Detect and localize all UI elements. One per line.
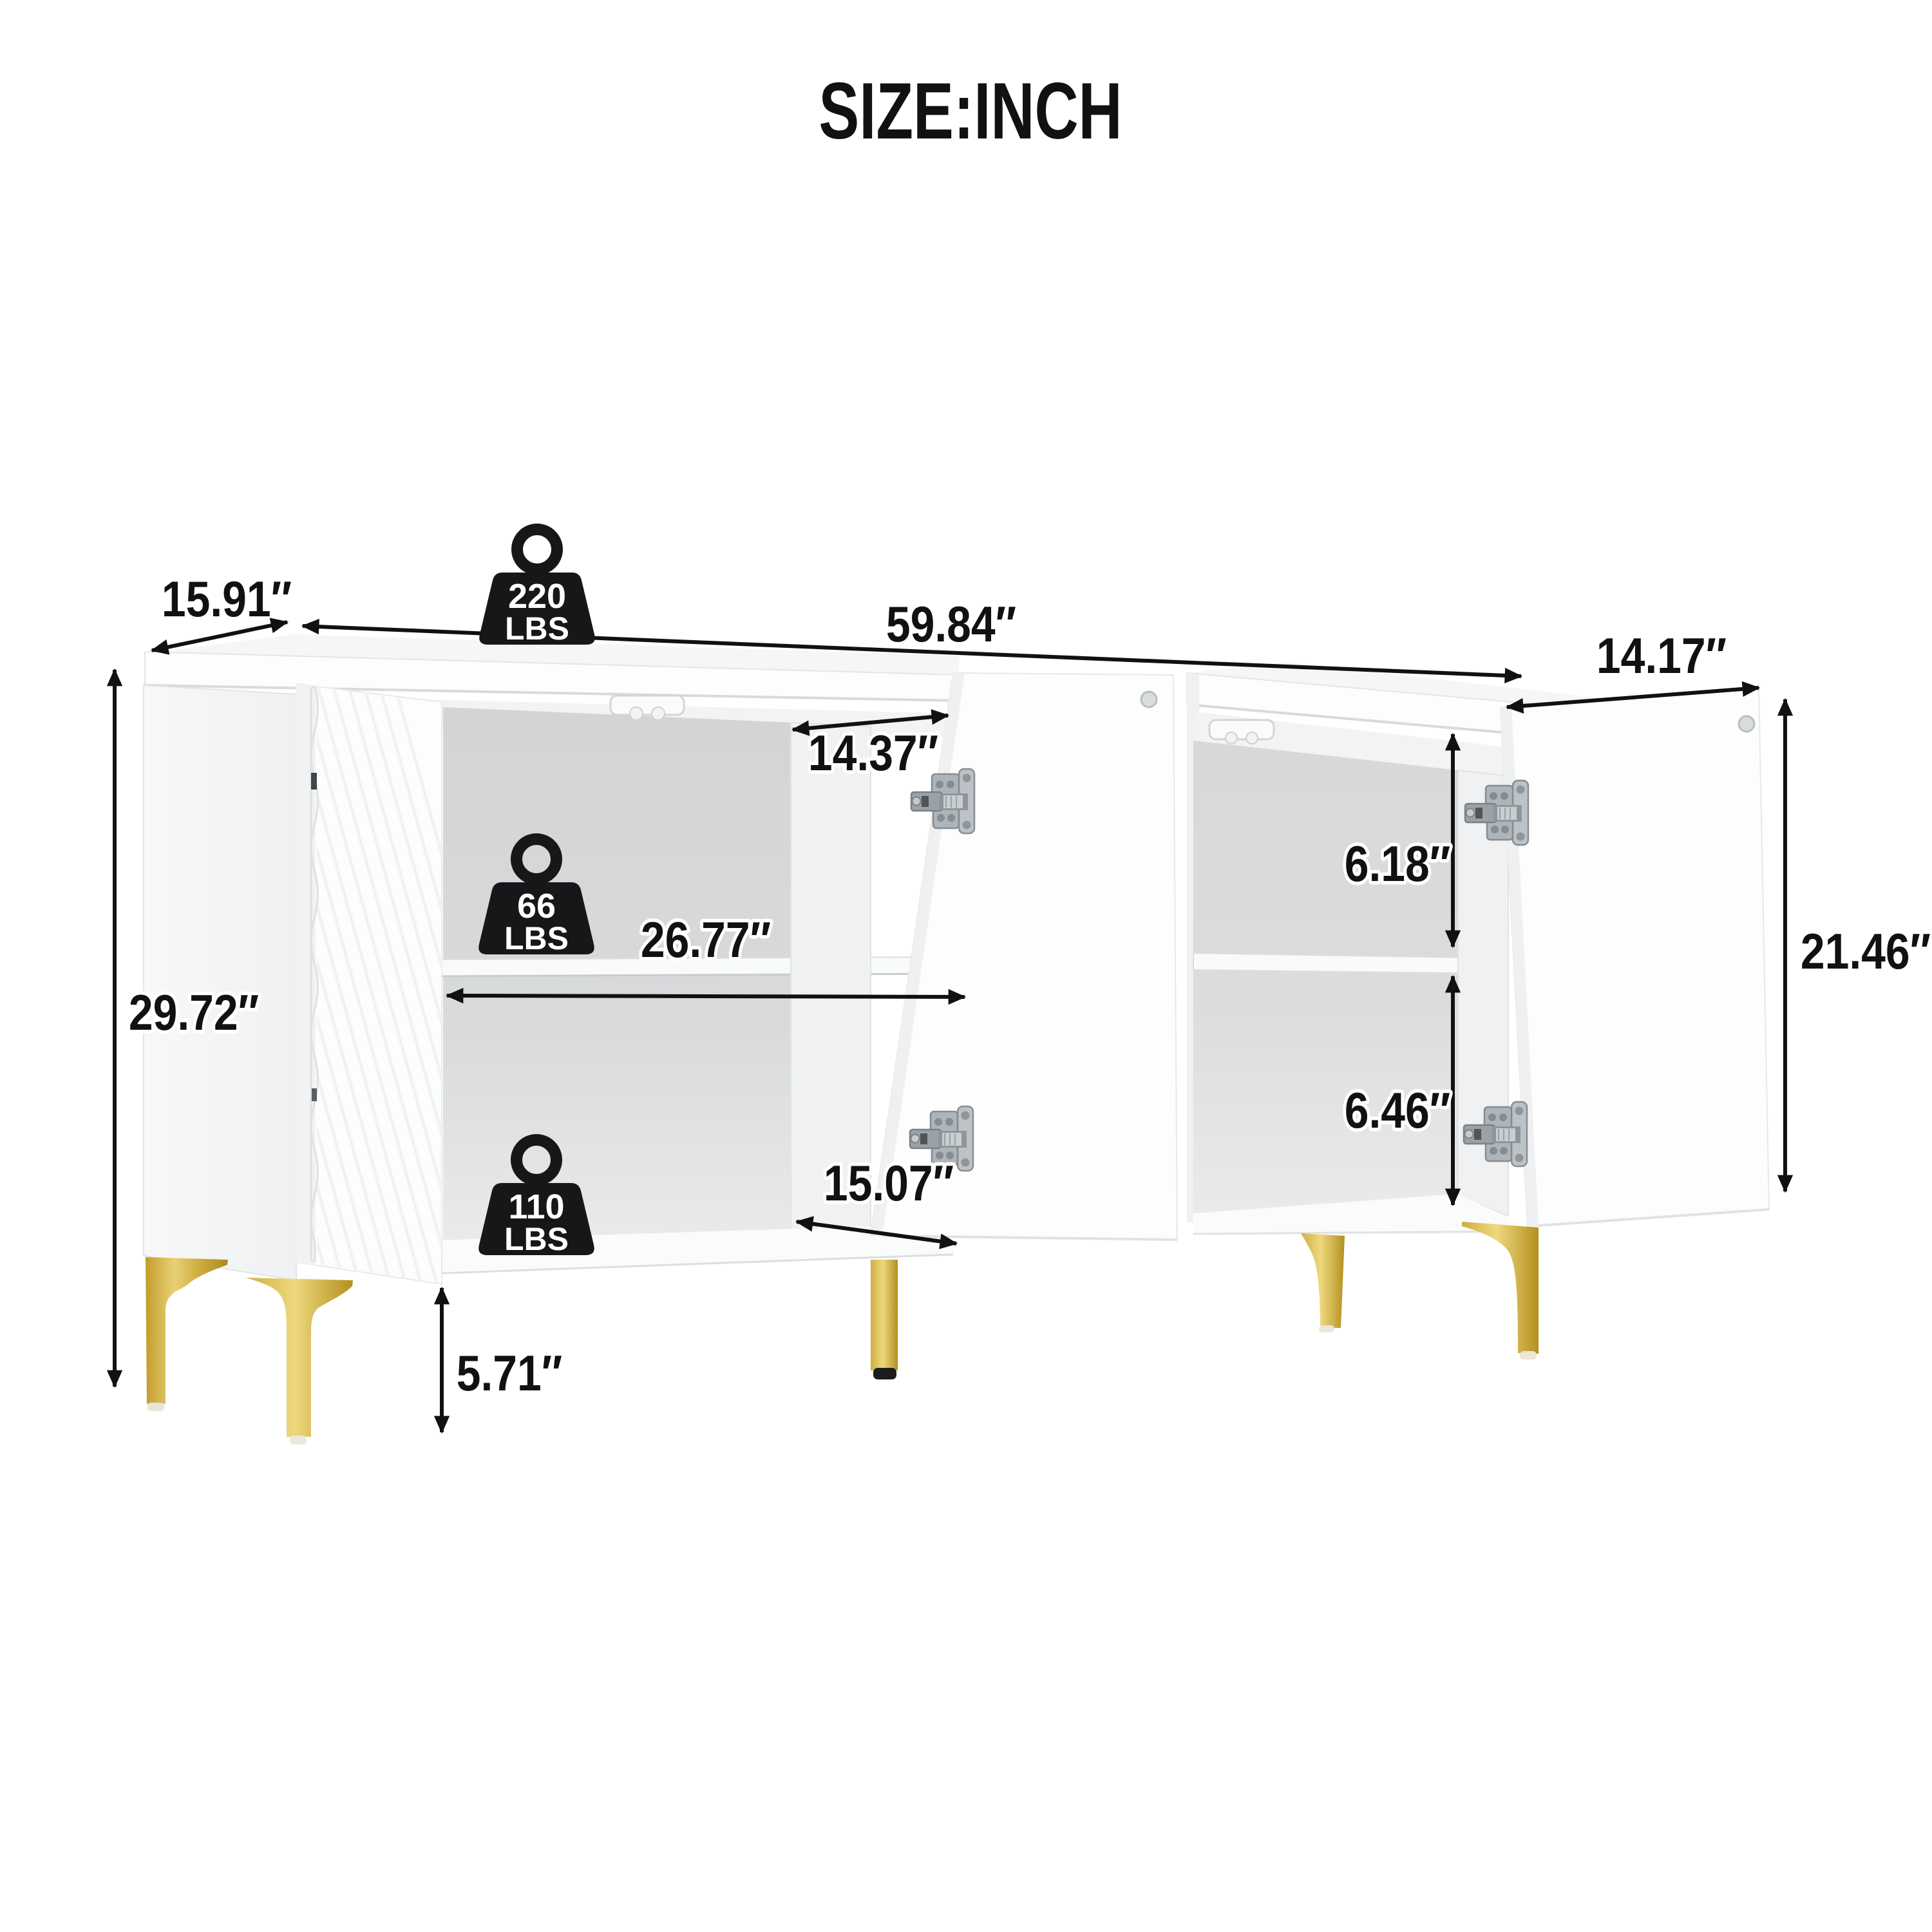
svg-text:6.18″: 6.18″ bbox=[1345, 837, 1451, 892]
svg-text:LBS: LBS bbox=[504, 1221, 569, 1257]
svg-text:220: 220 bbox=[508, 577, 566, 616]
svg-text:14.17″: 14.17″ bbox=[1596, 629, 1727, 684]
svg-text:26.77″: 26.77″ bbox=[641, 913, 771, 968]
svg-text:29.72″: 29.72″ bbox=[129, 985, 259, 1041]
svg-text:SIZE:INCH: SIZE:INCH bbox=[819, 67, 1122, 156]
svg-text:21.46″: 21.46″ bbox=[1801, 924, 1931, 980]
svg-text:15.07″: 15.07″ bbox=[824, 1156, 954, 1211]
svg-text:6.46″: 6.46″ bbox=[1345, 1083, 1451, 1139]
svg-text:5.71″: 5.71″ bbox=[457, 1346, 563, 1401]
svg-text:59.84″: 59.84″ bbox=[886, 597, 1016, 652]
svg-text:110: 110 bbox=[508, 1188, 564, 1226]
svg-text:15.91″: 15.91″ bbox=[162, 572, 292, 627]
svg-text:LBS: LBS bbox=[505, 611, 569, 647]
svg-text:14.37″: 14.37″ bbox=[808, 726, 938, 781]
svg-text:LBS: LBS bbox=[504, 920, 569, 956]
svg-text:66: 66 bbox=[517, 887, 556, 925]
